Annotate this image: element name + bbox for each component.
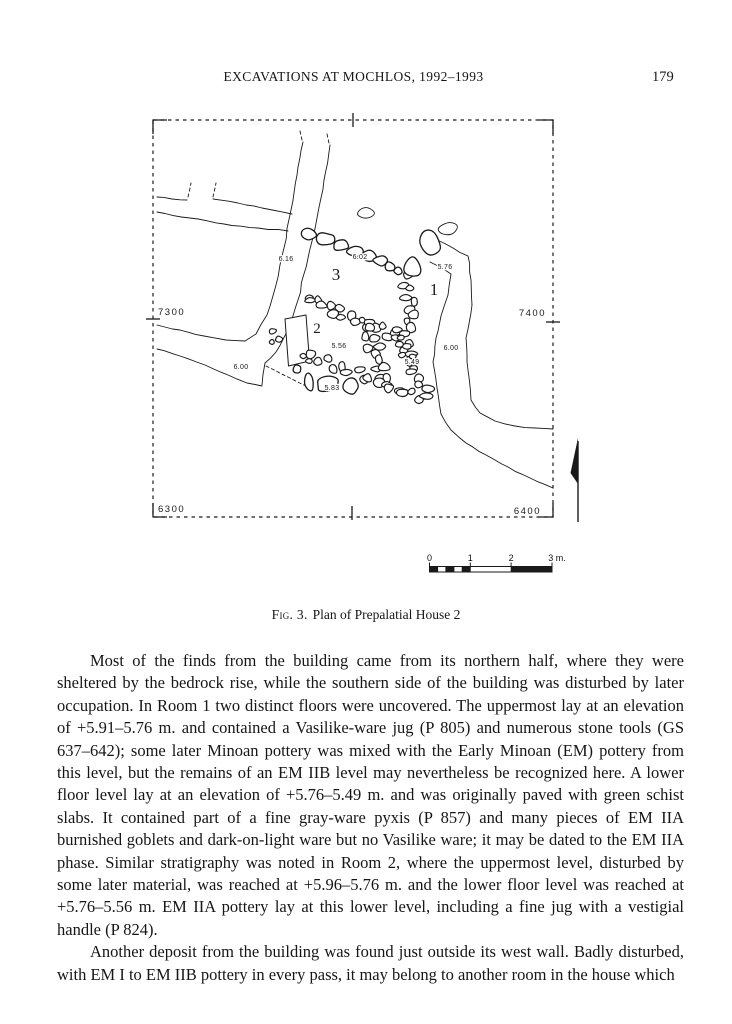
figure-caption-text: Plan of Prepalatial House 2 bbox=[313, 607, 461, 622]
grid-label-6300: 6300 bbox=[158, 504, 185, 515]
figure-caption-label: Fig. 3. bbox=[272, 607, 308, 622]
room-2-label: 2 bbox=[313, 321, 321, 337]
grid-label-6400: 6400 bbox=[514, 506, 541, 517]
scale-tick-1: 1 bbox=[468, 553, 473, 563]
room-3-label: 3 bbox=[332, 265, 341, 284]
elevation-583: 5.83 bbox=[325, 385, 340, 392]
elevation-576: 5.76 bbox=[438, 264, 453, 271]
figure-caption: Fig. 3.Plan of Prepalatial House 2 bbox=[0, 607, 732, 623]
page-number: 179 bbox=[652, 69, 674, 86]
north-arrow bbox=[571, 438, 579, 522]
paragraph-2: Another deposit from the building was fo… bbox=[57, 941, 684, 986]
elevation-600-east: 6.00 bbox=[444, 345, 459, 352]
elevation-616: 6.16 bbox=[279, 256, 294, 263]
elevation-556: 5.56 bbox=[332, 343, 347, 350]
scale-tick-3m: 3 m. bbox=[548, 553, 566, 563]
grid-label-7400: 7400 bbox=[519, 308, 546, 319]
terrace-wall-lines bbox=[157, 131, 553, 488]
running-head: EXCAVATIONS AT MOCHLOS, 1992–1993 bbox=[140, 69, 567, 85]
elevation-600-west: 6.00 bbox=[234, 364, 249, 371]
grid-label-7300: 7300 bbox=[158, 307, 185, 318]
elevation-602: 6.02 bbox=[353, 254, 368, 261]
room-1-label: 1 bbox=[430, 280, 439, 299]
elevation-549: 5.49 bbox=[405, 359, 420, 366]
scale-bar: 0 1 2 3 m. bbox=[427, 553, 566, 572]
paragraph-1: Most of the finds from the building came… bbox=[57, 650, 684, 941]
body-text: Most of the finds from the building came… bbox=[57, 650, 684, 986]
scale-tick-0: 0 bbox=[427, 553, 432, 563]
scale-tick-2: 2 bbox=[509, 553, 514, 563]
site-plan-figure: 7300 7400 6300 6400 3 1 2 6.16 6.02 5.76… bbox=[140, 108, 600, 588]
journal-page: EXCAVATIONS AT MOCHLOS, 1992–1993 179 73… bbox=[0, 0, 732, 1024]
